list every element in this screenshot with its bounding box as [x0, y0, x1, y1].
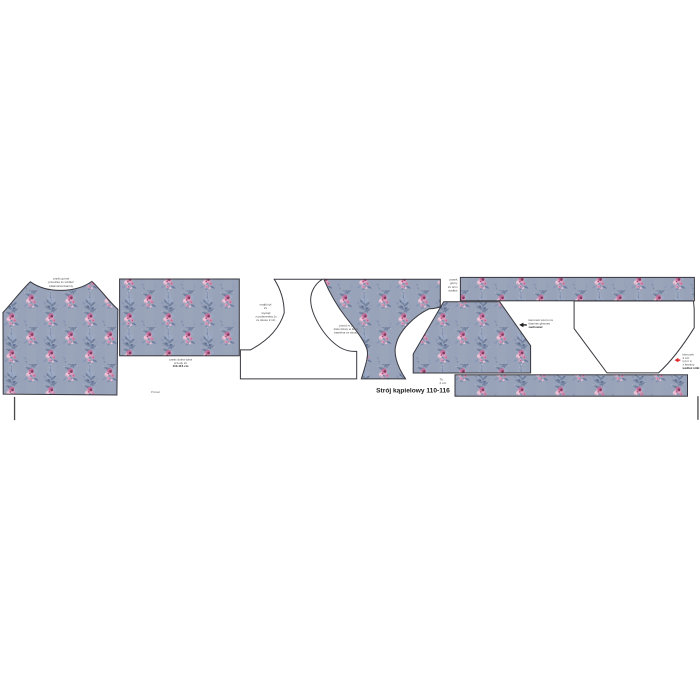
svg-text:wzdłuż nitki: wzdłuż nitki: [682, 366, 700, 370]
svg-text:110-116 cm: 110-116 cm: [173, 364, 189, 368]
svg-text:załamania tkaniny: załamania tkaniny: [49, 284, 74, 288]
svg-text:Printed: Printed: [151, 390, 160, 394]
svg-text:ze skosu 2 szt.: ze skosu 2 szt.: [256, 318, 276, 322]
svg-text:2x: 2x: [264, 306, 268, 310]
svg-text:wzdłuż: wzdłuż: [448, 288, 458, 292]
svg-text:Strój kąpielowy 110-116: Strój kąpielowy 110-116: [376, 387, 450, 394]
svg-text:zachować: zachować: [529, 325, 544, 329]
svg-text:bawełna ze skosu: bawełna ze skosu: [334, 331, 358, 335]
svg-text:2 szt.: 2 szt.: [440, 381, 447, 385]
